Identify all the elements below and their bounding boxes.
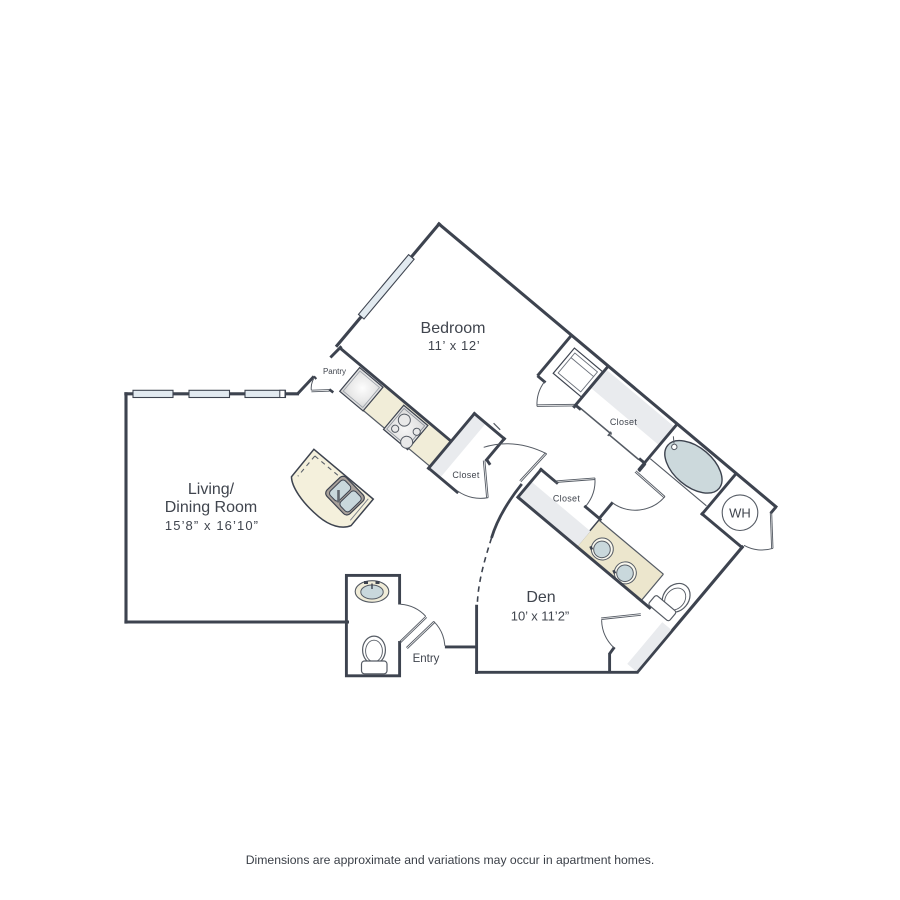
svg-text:10’ x 11’2”: 10’ x 11’2” [511, 609, 570, 624]
svg-text:Dimensions are approximate and: Dimensions are approximate and variation… [246, 853, 654, 867]
svg-text:WH: WH [729, 506, 751, 521]
svg-text:Closet: Closet [610, 417, 638, 427]
svg-text:Living/: Living/ [188, 481, 235, 498]
svg-text:Pantry: Pantry [323, 367, 346, 376]
svg-text:Bedroom: Bedroom [421, 320, 486, 337]
svg-text:11’ x 12’: 11’ x 12’ [428, 338, 480, 353]
svg-text:Den: Den [526, 589, 555, 606]
svg-text:Entry: Entry [413, 653, 440, 665]
svg-text:Dining Room: Dining Room [165, 499, 257, 516]
svg-text:Closet: Closet [553, 494, 581, 504]
svg-text:15’8” x 16’10”: 15’8” x 16’10” [165, 518, 259, 533]
svg-text:Closet: Closet [452, 470, 480, 480]
